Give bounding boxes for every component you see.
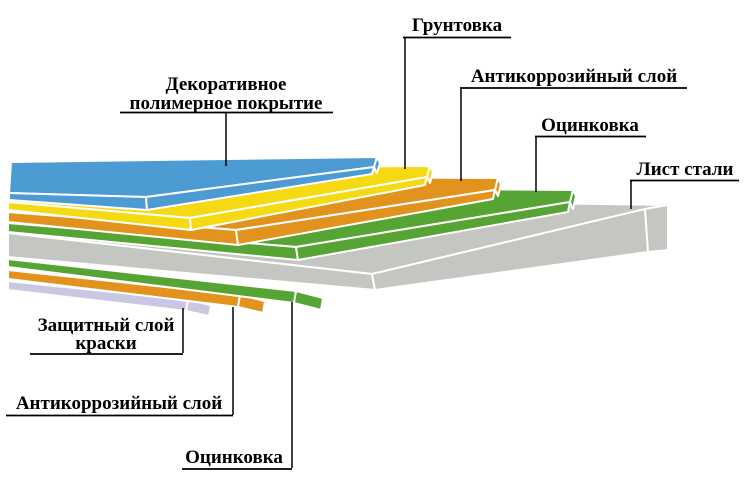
callout-steel-label: Лист стали <box>637 159 734 180</box>
steel-layers-illustration: Декоративноеполимерное покрытиеГрунтовка… <box>0 0 752 477</box>
callout-paint: Защитный слойкраски <box>30 308 183 354</box>
callout-polymer: Декоративноеполимерное покрытие <box>120 74 333 166</box>
callout-steel: Лист стали <box>630 159 739 209</box>
callout-zinc_bottom-label: Оцинковка <box>185 447 283 468</box>
steel-sheet-end-face <box>645 205 668 252</box>
callout-primer: Грунтовка <box>403 15 511 169</box>
callout-anticorrosion_bottom-label: Антикоррозийный слой <box>16 393 222 414</box>
callout-zinc_top-label: Оцинковка <box>541 115 639 136</box>
callout-primer-label: Грунтовка <box>412 15 503 36</box>
callout-paint-label: Защитный слойкраски <box>38 315 175 354</box>
diagram: Декоративноеполимерное покрытиеГрунтовка… <box>0 0 752 477</box>
callout-zinc_bottom: Оцинковка <box>182 302 292 469</box>
zinc-layer-bottom-end-face <box>294 291 323 310</box>
callout-polymer-label: Декоративноеполимерное покрытие <box>130 74 323 114</box>
callout-anticorrosion_top-label: Антикоррозийный слой <box>471 66 677 87</box>
callout-zinc_top: Оцинковка <box>535 115 646 192</box>
sheet-stack <box>8 157 668 316</box>
